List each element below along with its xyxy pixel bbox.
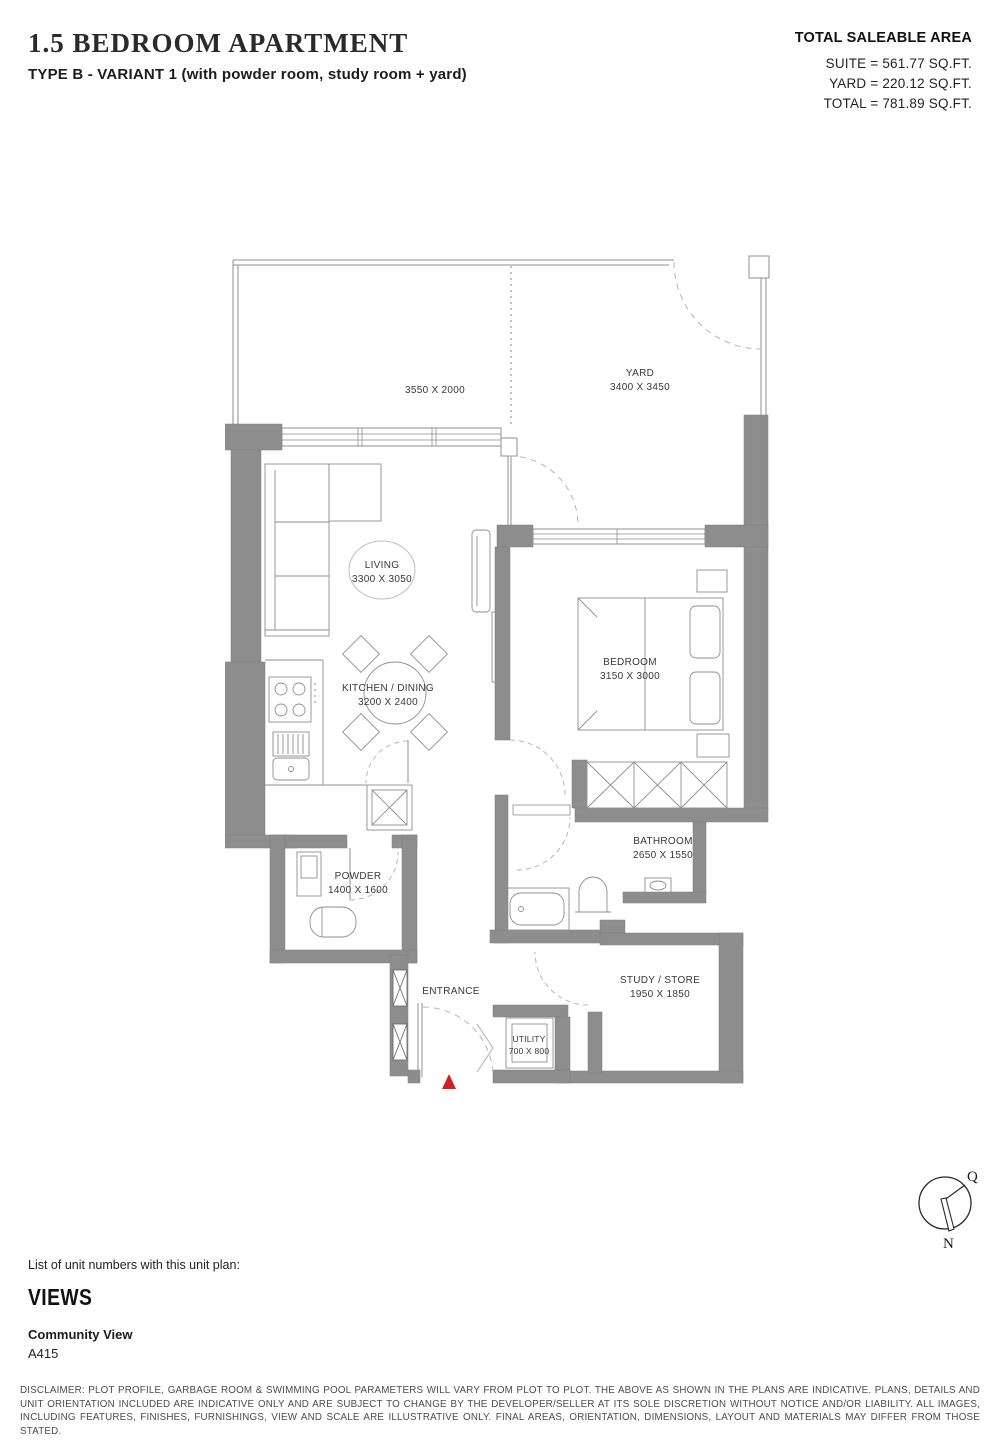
area-yard: YARD = 220.12 SQ.FT. (795, 74, 972, 94)
label-kitchen: KITCHEN / DINING (342, 683, 434, 694)
label-yard: YARD (626, 368, 654, 379)
bedroom-window (533, 529, 705, 544)
label-bathroom: BATHROOM (633, 836, 692, 847)
sink-unit (273, 732, 309, 780)
bathroom-door-frame (513, 805, 570, 815)
toilet (575, 877, 611, 912)
kitchen-door-swing (366, 741, 408, 783)
label-utility-dim: 700 X 800 (509, 1046, 550, 1056)
floorplan-svg: 3550 X 2000 YARD 3400 X 3450 LIVING 3300… (225, 252, 777, 1100)
compass-north-letter: N (943, 1236, 954, 1252)
stove (269, 677, 316, 722)
study-door-swing (535, 952, 588, 1005)
area-suite: SUITE = 561.77 SQ.FT. (795, 54, 972, 74)
compass: Q N (905, 1155, 1000, 1260)
label-kitchen-dim: 3200 X 2400 (358, 697, 418, 708)
disclaimer-text: DISCLAIMER: PLOT PROFILE, GARBAGE ROOM &… (20, 1384, 980, 1438)
shaft-box (367, 785, 412, 830)
saleable-area-block: TOTAL SALEABLE AREA SUITE = 561.77 SQ.FT… (795, 30, 972, 114)
living-window (282, 428, 501, 446)
label-powder-dim: 1400 X 1600 (328, 885, 388, 896)
compass-needle (941, 1198, 954, 1231)
label-study-dim: 1950 X 1850 (630, 989, 690, 1000)
label-bathroom-dim: 2650 X 1550 (633, 850, 693, 861)
door-post (501, 438, 517, 456)
page-subtitle: TYPE B - VARIANT 1 (with powder room, st… (28, 66, 467, 83)
sofa (265, 464, 381, 636)
unit-number: A415 (28, 1346, 58, 1361)
floorplan-page: 1.5 BEDROOM APARTMENT TYPE B - VARIANT 1… (0, 0, 1000, 1441)
compass-qibla-letter: Q (967, 1169, 978, 1185)
label-utility: UTILITY (512, 1034, 545, 1044)
yard-gate-swing (674, 262, 761, 349)
bathtub (505, 888, 569, 930)
utility-door-fold (477, 1024, 493, 1072)
label-bedroom: BEDROOM (603, 657, 657, 668)
label-terrace-dim: 3550 X 2000 (405, 385, 465, 396)
area-total: TOTAL = 781.89 SQ.FT. (795, 94, 972, 114)
view-name: Community View (28, 1327, 133, 1342)
label-powder: POWDER (335, 871, 382, 882)
page-title: 1.5 BEDROOM APARTMENT (28, 28, 408, 59)
powder-vanity (297, 852, 321, 896)
label-living: LIVING (365, 560, 400, 571)
powder-toilet (310, 907, 356, 937)
yard-fence (233, 260, 766, 424)
wardrobe (587, 762, 727, 808)
bathroom-sink (645, 878, 671, 893)
entry-marker-triangle (442, 1074, 456, 1089)
floorplan-drawing: 3550 X 2000 YARD 3400 X 3450 LIVING 3300… (225, 252, 777, 1100)
gate-post (749, 256, 769, 278)
views-heading: VIEWS (28, 1284, 92, 1311)
bedroom-door-swing (510, 740, 565, 795)
entrance-door-leaf (418, 1003, 422, 1077)
bathroom-door-swing (517, 817, 570, 870)
yard-door-leaf (508, 456, 511, 525)
label-study: STUDY / STORE (620, 975, 700, 986)
label-entrance: ENTRANCE (422, 986, 479, 997)
yard-door-swing (509, 456, 578, 525)
unit-list-label: List of unit numbers with this unit plan… (28, 1258, 240, 1272)
console-table (472, 530, 490, 612)
compass-svg: Q N (905, 1155, 1000, 1260)
label-yard-dim: 3400 X 3450 (610, 382, 670, 393)
label-living-dim: 3300 X 3050 (352, 574, 412, 585)
label-bedroom-dim: 3150 X 3000 (600, 671, 660, 682)
area-heading: TOTAL SALEABLE AREA (795, 30, 972, 46)
entrance-door-swing (423, 1007, 493, 1077)
